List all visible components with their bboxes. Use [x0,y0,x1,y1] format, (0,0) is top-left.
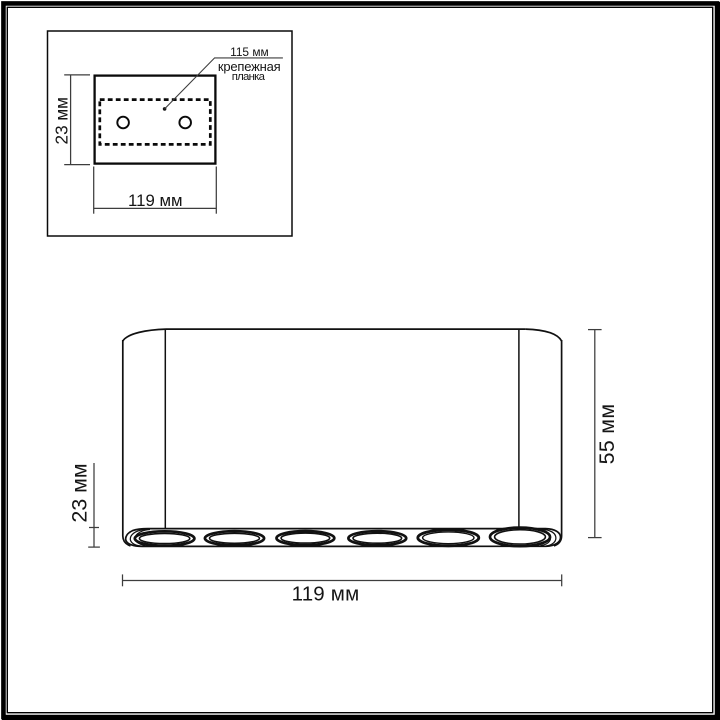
svg-text:23 мм: 23 мм [68,463,92,522]
svg-text:115 мм: 115 мм [230,45,269,59]
svg-text:23 мм: 23 мм [52,97,71,144]
svg-text:119 мм: 119 мм [292,582,360,605]
svg-text:планка: планка [232,71,266,83]
svg-text:55 мм: 55 мм [595,404,619,465]
svg-text:119 мм: 119 мм [128,191,183,210]
